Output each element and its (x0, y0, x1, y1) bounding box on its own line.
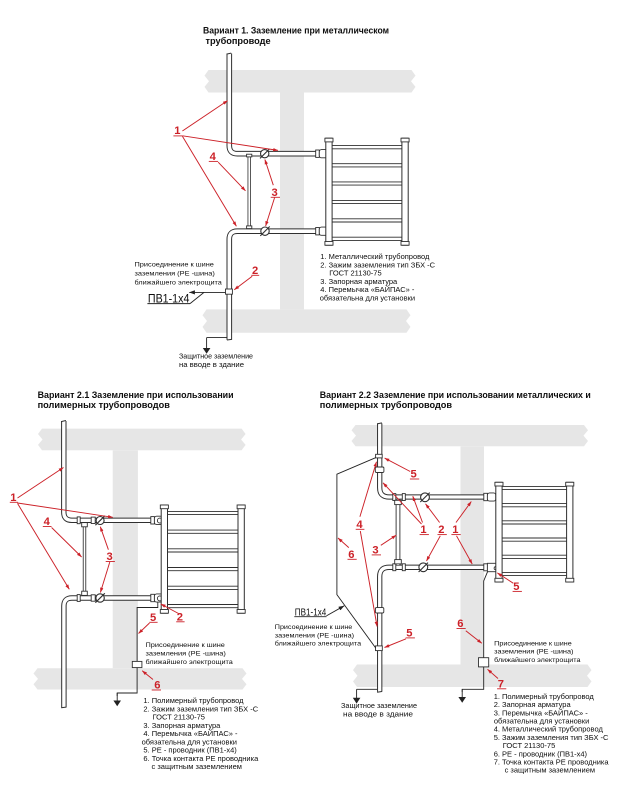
svg-text:на вводе в здание: на вводе в здание (343, 712, 413, 719)
svg-text:Присоединение к шине: Присоединение к шине (135, 262, 215, 269)
svg-text:с защитным заземлением: с защитным заземлением (152, 762, 242, 771)
svg-text:Вариант 1. Заземление при мета: Вариант 1. Заземление при металлическом (203, 26, 389, 36)
svg-text:полимерных трубопроводов: полимерных трубопроводов (38, 400, 171, 410)
svg-text:Вариант 2.2 Заземление при исп: Вариант 2.2 Заземление при использовании… (320, 390, 591, 400)
svg-text:обязательна для установки: обязательна для установки (320, 293, 415, 302)
svg-text:заземления (РЕ -шина): заземления (РЕ -шина) (146, 651, 226, 658)
svg-text:трубопроводе: трубопроводе (206, 36, 271, 46)
svg-text:полимерных трубопроводов: полимерных трубопроводов (320, 400, 453, 410)
svg-text:на вводе в здание: на вводе в здание (179, 362, 244, 369)
svg-text:Присоединение к шине: Присоединение к шине (146, 642, 226, 649)
svg-text:заземления (РЕ -шина): заземления (РЕ -шина) (275, 632, 354, 639)
svg-text:ближайшего электрощита: ближайшего электрощита (275, 640, 362, 648)
svg-text:Защитное заземление: Защитное заземление (179, 353, 253, 360)
svg-text:Вариант 2.1 Заземление при исп: Вариант 2.1 Заземление при использовании (38, 390, 234, 400)
svg-text:заземления (РЕ -шина): заземления (РЕ -шина) (135, 270, 215, 277)
svg-text:Присоединение к шине: Присоединение к шине (494, 640, 572, 647)
svg-text:1: 1 (174, 125, 180, 137)
svg-text:заземления (РЕ -шина): заземления (РЕ -шина) (494, 649, 573, 656)
svg-text:с защитным заземлением: с защитным заземлением (505, 766, 595, 775)
svg-text:ближайшего электрощита: ближайшего электрощита (494, 656, 581, 664)
svg-text:ближайшего электрощита: ближайшего электрощита (146, 658, 234, 666)
svg-text:ближайшего электрощита: ближайшего электрощита (135, 278, 223, 286)
svg-text:Присоединение к шине: Присоединение к шине (275, 624, 353, 631)
svg-text:Защитное заземление: Защитное заземление (341, 703, 417, 710)
